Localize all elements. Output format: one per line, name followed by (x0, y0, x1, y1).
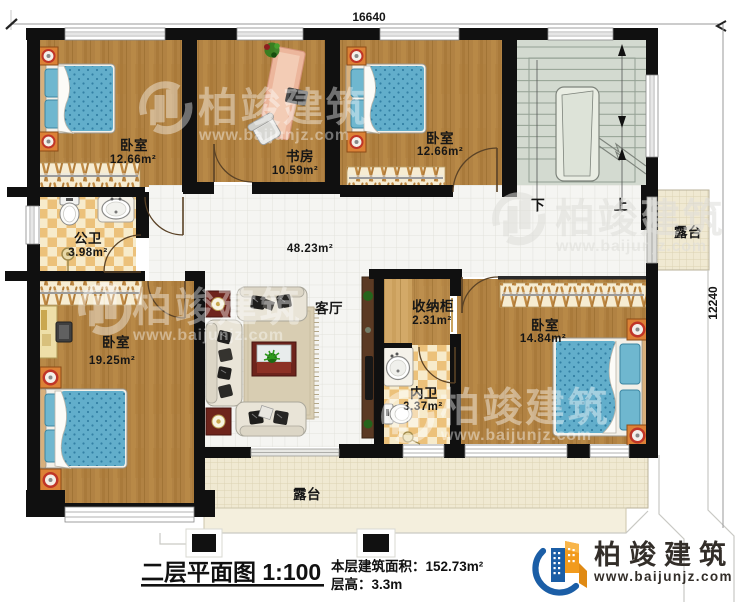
svg-text:48.23m²: 48.23m² (287, 243, 333, 255)
svg-text:柏竣建筑: 柏竣建筑 (198, 86, 368, 130)
svg-text:16640: 16640 (352, 10, 386, 24)
svg-text:12240: 12240 (706, 286, 720, 320)
svg-text:www.baijunjz.com: www.baijunjz.com (593, 569, 733, 584)
svg-text:www.baijunjz.com: www.baijunjz.com (132, 327, 284, 344)
svg-text:14.84m²: 14.84m² (520, 333, 566, 345)
svg-text:下: 下 (531, 197, 546, 213)
svg-text:客厅: 客厅 (314, 300, 343, 316)
svg-text:柏竣建筑: 柏竣建筑 (555, 197, 725, 241)
svg-text:卧室: 卧室 (120, 137, 148, 153)
svg-text:19.25m²: 19.25m² (89, 355, 135, 367)
svg-text:2.31m²: 2.31m² (412, 315, 451, 327)
svg-text:露台: 露台 (293, 486, 321, 502)
svg-text:卧室: 卧室 (531, 317, 559, 333)
svg-text:柏竣建筑: 柏竣建筑 (594, 539, 734, 570)
svg-text:3.98m²: 3.98m² (68, 247, 107, 259)
svg-text:卧室: 卧室 (426, 130, 454, 146)
svg-text:柏竣建筑: 柏竣建筑 (132, 286, 302, 330)
svg-text:本层建筑面积：152.73m²: 本层建筑面积：152.73m² (331, 558, 484, 574)
svg-text:12.66m²: 12.66m² (417, 146, 463, 158)
svg-text:公卫: 公卫 (74, 231, 102, 246)
svg-text:柏竣建筑: 柏竣建筑 (440, 386, 610, 430)
svg-text:10.59m²: 10.59m² (272, 165, 318, 177)
svg-text:www.baijunjz.com: www.baijunjz.com (198, 127, 350, 144)
svg-text:二层平面图 1:100: 二层平面图 1:100 (141, 559, 321, 585)
svg-text:卧室: 卧室 (102, 334, 130, 350)
svg-text:层高：3.3m: 层高：3.3m (331, 576, 402, 592)
svg-text:www.baijunjz.com: www.baijunjz.com (555, 238, 707, 255)
svg-text:收纳柜: 收纳柜 (412, 298, 454, 314)
svg-text:www.baijunjz.com: www.baijunjz.com (440, 427, 592, 444)
svg-text:书房: 书房 (286, 148, 314, 164)
svg-text:12.66m²: 12.66m² (110, 154, 156, 166)
